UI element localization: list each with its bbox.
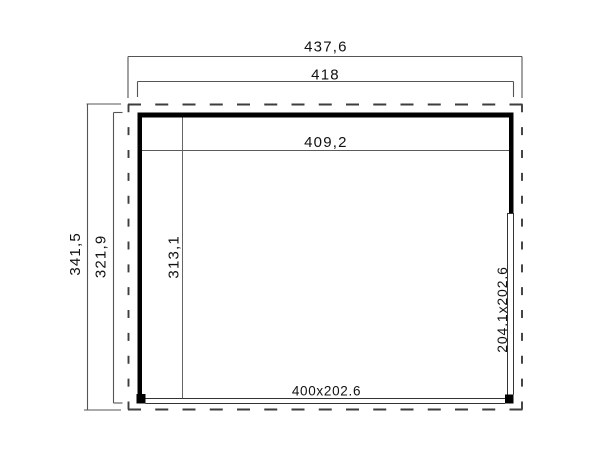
svg-text:313,1: 313,1	[165, 235, 182, 279]
svg-text:418: 418	[311, 66, 340, 83]
svg-text:341,5: 341,5	[67, 232, 84, 276]
svg-text:437,6: 437,6	[304, 39, 348, 56]
svg-text:204.1x202.6: 204.1x202.6	[494, 266, 510, 352]
svg-text:321,9: 321,9	[93, 235, 110, 279]
svg-text:400x202.6: 400x202.6	[292, 384, 361, 399]
svg-text:409,2: 409,2	[304, 134, 348, 151]
